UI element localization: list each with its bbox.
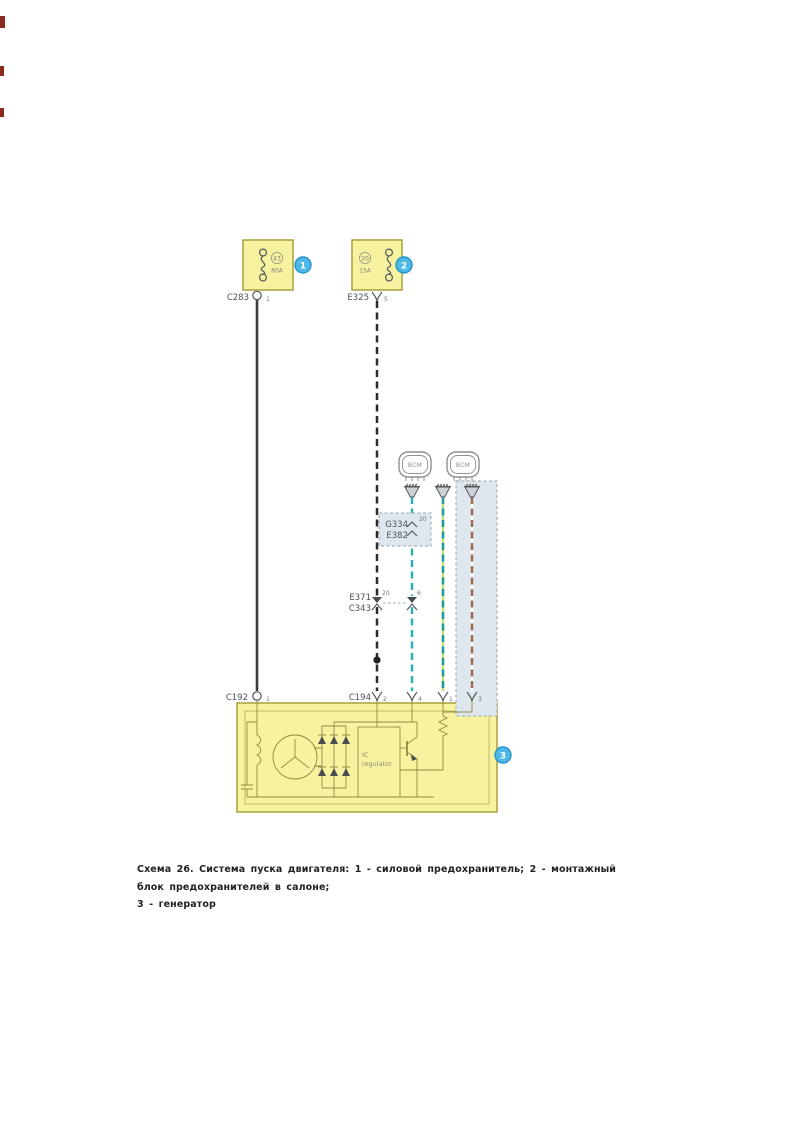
- wiring-diagram: IC regulator: [0, 0, 800, 1130]
- connector-y-e325: [372, 292, 382, 301]
- pin-number-right: 6: [417, 590, 421, 597]
- connector-label-e371: E371: [349, 593, 371, 603]
- connector-label-c283: C283: [227, 293, 249, 303]
- connector-label-e382: E382: [386, 531, 408, 541]
- fuse-box-2: 20 15A E325 5 2: [347, 240, 412, 303]
- fuse-rating: 80A: [271, 268, 284, 275]
- fuse-rating: 15A: [359, 268, 372, 275]
- pin-number-4: 4: [418, 696, 422, 703]
- connector-ring-c283: [253, 291, 261, 299]
- scanned-wiring-diagram-page: IC regulator: [0, 0, 800, 1130]
- callout-2: 2: [396, 257, 412, 273]
- bcm-1-label: BCM: [408, 462, 422, 469]
- splice-dot: [373, 656, 380, 663]
- pin-number-left: 20: [382, 590, 390, 597]
- caption-line-1: Схема 26. Система пуска двигателя: 1 - с…: [137, 861, 617, 896]
- wire-ignition-blackwhite: [373, 301, 380, 691]
- fuse-number: 43: [273, 256, 281, 263]
- bcm-module-2: BCM: [447, 452, 479, 481]
- caption-line-2: 3 - генератор: [137, 896, 617, 914]
- ic-regulator-label-2: regulator: [362, 760, 392, 768]
- connector-label-c194: C194: [349, 693, 371, 703]
- bcm-2-label: BCM: [456, 462, 470, 469]
- fuse-box-1: 43 80A C283 1 1: [227, 240, 311, 303]
- pair-connector-e371-c343: E371 C343 20 6: [349, 590, 421, 614]
- pin-number: 1: [266, 696, 270, 703]
- connector-c192: C192 1: [226, 692, 270, 703]
- pin-number: 1: [266, 296, 270, 303]
- connector-label-e325: E325: [347, 293, 369, 303]
- callout-2-number: 2: [401, 262, 407, 272]
- harness-dashed-box: [456, 481, 497, 716]
- connector-label-c192: C192: [226, 693, 248, 703]
- pin-number-1: 1: [449, 696, 453, 703]
- figure-caption: Схема 26. Система пуска двигателя: 1 - с…: [137, 861, 617, 914]
- pin-number: 20: [419, 516, 427, 523]
- callout-1-number: 1: [300, 262, 306, 272]
- connector-label-c343: C343: [349, 604, 371, 614]
- pin-number-3: 3: [478, 696, 482, 703]
- fuse-number: 20: [361, 256, 369, 263]
- callout-3-number: 3: [500, 752, 506, 762]
- connector-label-g334: G334: [385, 520, 408, 530]
- harness-arrow-connector: [404, 484, 420, 497]
- callout-1: 1: [295, 257, 311, 273]
- pin-number-2: 2: [383, 696, 387, 703]
- bcm-module-1: BCM: [399, 452, 431, 481]
- callout-3: 3: [495, 747, 511, 763]
- inline-connector-g334-e382: G334 E382 20: [379, 513, 431, 546]
- ic-regulator-label-1: IC: [362, 751, 369, 759]
- pin-number: 5: [384, 296, 388, 303]
- harness-arrow-connector: [435, 484, 451, 497]
